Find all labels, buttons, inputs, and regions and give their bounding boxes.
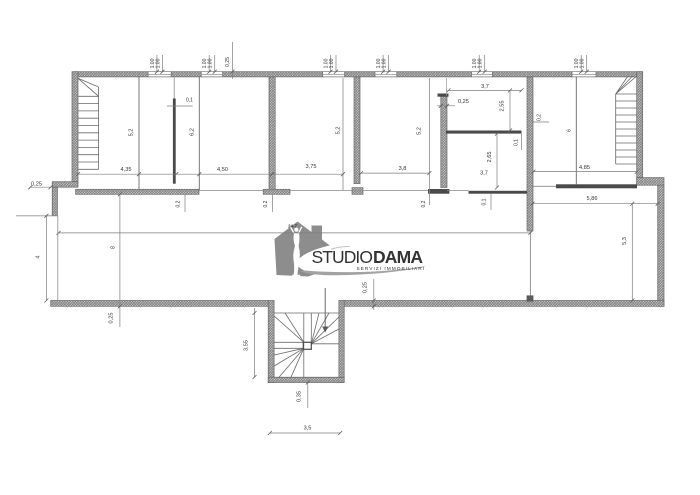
svg-text:3,75: 3,75 xyxy=(306,164,317,170)
svg-text:0,2: 0,2 xyxy=(537,114,543,121)
svg-text:0,25: 0,25 xyxy=(225,57,231,67)
svg-text:0,1: 0,1 xyxy=(514,139,520,146)
svg-text:1.00: 1.00 xyxy=(580,58,586,68)
svg-text:3,7: 3,7 xyxy=(480,171,488,177)
svg-text:0,25: 0,25 xyxy=(363,282,369,293)
svg-text:5,86: 5,86 xyxy=(587,196,598,202)
svg-text:0,25: 0,25 xyxy=(31,181,42,187)
svg-text:3,7: 3,7 xyxy=(481,84,489,90)
svg-text:3,8: 3,8 xyxy=(399,166,407,172)
svg-text:5,2: 5,2 xyxy=(336,127,342,135)
svg-text:4,85: 4,85 xyxy=(579,165,590,171)
svg-text:1.00: 1.00 xyxy=(382,58,388,68)
svg-text:0,2: 0,2 xyxy=(176,200,182,207)
svg-text:3,55: 3,55 xyxy=(244,340,250,351)
svg-text:0,1: 0,1 xyxy=(482,198,488,205)
svg-text:1.00: 1.00 xyxy=(478,58,484,68)
svg-text:5,2: 5,2 xyxy=(417,127,423,135)
svg-text:24-7: 24-7 xyxy=(288,223,297,228)
svg-text:2,65: 2,65 xyxy=(487,152,493,163)
svg-text:1.00: 1.00 xyxy=(329,58,335,68)
svg-text:1.00: 1.00 xyxy=(155,58,161,68)
svg-text:STUDIO: STUDIO xyxy=(312,247,374,267)
svg-text:4: 4 xyxy=(36,255,42,258)
svg-text:DAMA: DAMA xyxy=(373,247,423,267)
svg-text:5,3: 5,3 xyxy=(622,237,628,245)
svg-text:0,25: 0,25 xyxy=(109,313,115,324)
svg-text:0,2: 0,2 xyxy=(263,200,269,207)
svg-text:0,1: 0,1 xyxy=(186,98,193,104)
svg-text:3,5: 3,5 xyxy=(304,426,312,432)
svg-text:SERVIZI IMMOBILIARI: SERVIZI IMMOBILIARI xyxy=(357,266,425,272)
svg-text:8: 8 xyxy=(111,246,117,249)
svg-text:2,55: 2,55 xyxy=(500,101,506,112)
svg-text:5,2: 5,2 xyxy=(129,129,135,137)
svg-text:4,35: 4,35 xyxy=(121,167,132,173)
svg-text:6,2: 6,2 xyxy=(190,128,196,136)
svg-text:4,50: 4,50 xyxy=(217,167,228,173)
svg-text:0,25: 0,25 xyxy=(458,99,469,105)
svg-text:6: 6 xyxy=(567,129,573,132)
svg-text:0,2: 0,2 xyxy=(421,200,427,207)
svg-text:1.00: 1.00 xyxy=(208,58,214,68)
svg-text:0,35: 0,35 xyxy=(297,391,303,402)
